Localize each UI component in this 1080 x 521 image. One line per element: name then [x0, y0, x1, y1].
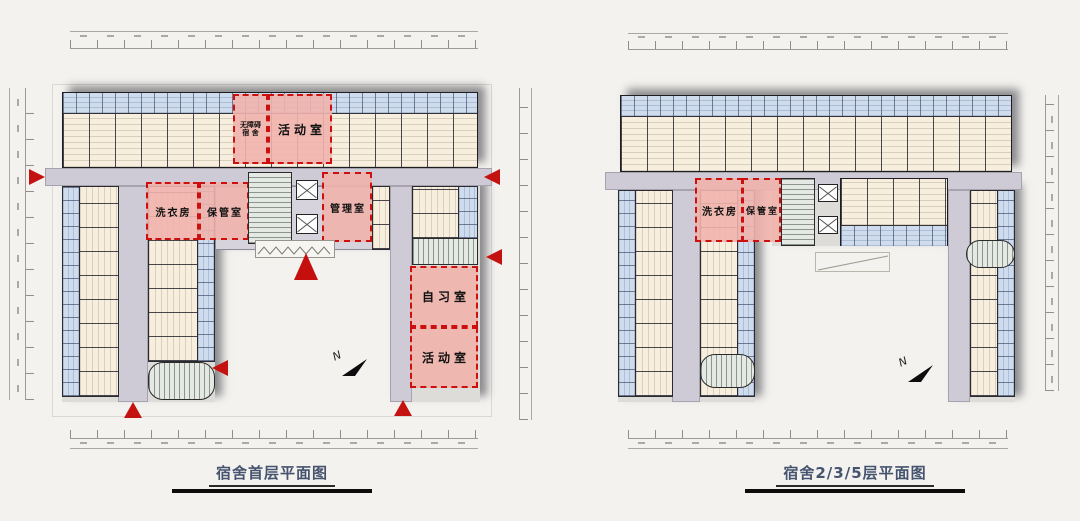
dimension-values-right-r	[1051, 103, 1053, 383]
exit-arrow-west-icon	[29, 169, 45, 185]
left-wing-outer-pods	[62, 186, 80, 397]
right-wing-rooms	[412, 186, 459, 239]
bathroom-pod-strip-r	[621, 96, 1011, 117]
left-wing-stair-r	[700, 354, 755, 388]
caption-floors-2-3-5: 宿舍2/3/5层平面图	[745, 462, 965, 493]
elevator-2-r	[818, 216, 838, 234]
core-stair	[248, 172, 292, 244]
dimension-line-right-outer-r	[1058, 95, 1059, 391]
dimension-line-bottom-r	[628, 430, 1008, 439]
left-wing-corridor	[118, 186, 148, 402]
dimension-line-top-r	[628, 41, 1008, 50]
left-wing-stair	[148, 362, 215, 400]
dimension-line-left-outer	[9, 88, 10, 400]
dimension-values-bottom-r	[638, 442, 1000, 444]
room-activity-bottom-label: 活动室	[418, 349, 470, 366]
dimension-line-top-total-r	[628, 33, 1008, 34]
dimension-line-right-outer	[531, 88, 532, 420]
caption-first-floor-underline	[172, 489, 372, 493]
caption-floors-2-3-5-text: 宿舍2/3/5层平面图	[776, 462, 933, 487]
core-side-rooms-r	[840, 178, 948, 246]
dimension-line-top-total	[70, 31, 478, 32]
north-arrow-r-icon: N	[896, 352, 936, 390]
right-wing-corridor-r	[948, 190, 970, 402]
room-laundry: 洗衣房	[146, 182, 199, 240]
main-entrance-arrow-icon	[294, 253, 318, 280]
north-arrow-icon: N	[330, 346, 370, 384]
right-wing-rooms-r	[970, 190, 998, 397]
caption-first-floor: 宿舍首层平面图	[172, 462, 372, 493]
room-storage: 保管室	[199, 182, 249, 240]
dimension-line-left	[25, 88, 34, 400]
left-wing-outer-pods-r	[618, 190, 636, 397]
exit-arrow-right-wing-south-icon	[394, 400, 412, 416]
room-laundry-label: 洗衣房	[154, 204, 192, 219]
room-accessible-dorm: 无障碍 宿 舍	[233, 94, 268, 164]
room-activity-bottom: 活动室	[410, 327, 478, 388]
core-side-pods-r	[841, 225, 947, 246]
canopy-outline-r	[815, 252, 890, 272]
caption-first-floor-text: 宿舍首层平面图	[209, 462, 335, 487]
dimension-values-top	[80, 35, 472, 37]
room-accessible-dorm-label-2: 宿 舍	[242, 129, 258, 137]
core-stair-r	[781, 178, 815, 246]
left-wing-outer-rooms	[79, 186, 119, 397]
dimension-line-bottom-total-r	[628, 448, 1008, 449]
right-wing-pods-r	[997, 190, 1015, 397]
room-study-label: 自习室	[418, 288, 470, 305]
dimension-values-top-r	[638, 36, 1000, 38]
room-activity-top-label: 活动室	[274, 121, 326, 138]
elevator-1	[296, 180, 318, 200]
dorm-room-strip-r	[621, 117, 1011, 171]
core-side-rooms	[372, 186, 390, 250]
elevator-1-r	[818, 184, 838, 202]
core-side-rooms-r-top	[841, 179, 947, 225]
room-management: 管理室	[322, 172, 372, 242]
room-activity-top: 活动室	[268, 94, 332, 164]
room-management-label: 管理室	[328, 200, 366, 215]
exit-arrow-core-east-icon	[486, 249, 502, 265]
room-study: 自习室	[410, 266, 478, 327]
right-wing-pods	[458, 186, 478, 239]
elevator-2	[296, 214, 318, 234]
right-wing-stair	[412, 238, 478, 265]
room-laundry-r: 洗衣房	[695, 178, 743, 242]
room-storage-r-label: 保管室	[744, 204, 779, 217]
left-wing-outer-rooms-r	[635, 190, 673, 397]
north-arrow-label: N	[331, 348, 344, 363]
room-laundry-r-label: 洗衣房	[700, 203, 738, 218]
exit-arrow-east-icon	[484, 169, 500, 185]
right-wing-stair-r	[966, 240, 1015, 268]
top-wing-dorm-block-r	[620, 95, 1012, 172]
exit-arrow-left-wing-icon	[212, 360, 228, 376]
dimension-line-right	[519, 88, 528, 420]
room-storage-r: 保管室	[742, 178, 781, 242]
right-wing-corridor	[390, 186, 412, 402]
dimension-values-bottom	[80, 442, 472, 444]
dimension-values-left	[17, 96, 19, 392]
room-accessible-dorm-label-1: 无障碍	[240, 121, 261, 129]
caption-floors-2-3-5-underline	[745, 489, 965, 493]
dimension-line-bottom-total	[70, 448, 478, 449]
dimension-line-top	[70, 40, 478, 49]
dimension-line-bottom	[70, 430, 478, 439]
north-arrow-r-label: N	[897, 354, 910, 369]
room-storage-label: 保管室	[205, 204, 243, 219]
drawing-sheet: 无障碍 宿 舍 活动室 洗衣房 保管室 管理室	[0, 0, 1080, 521]
exit-arrow-left-wing-south-icon	[124, 402, 142, 418]
